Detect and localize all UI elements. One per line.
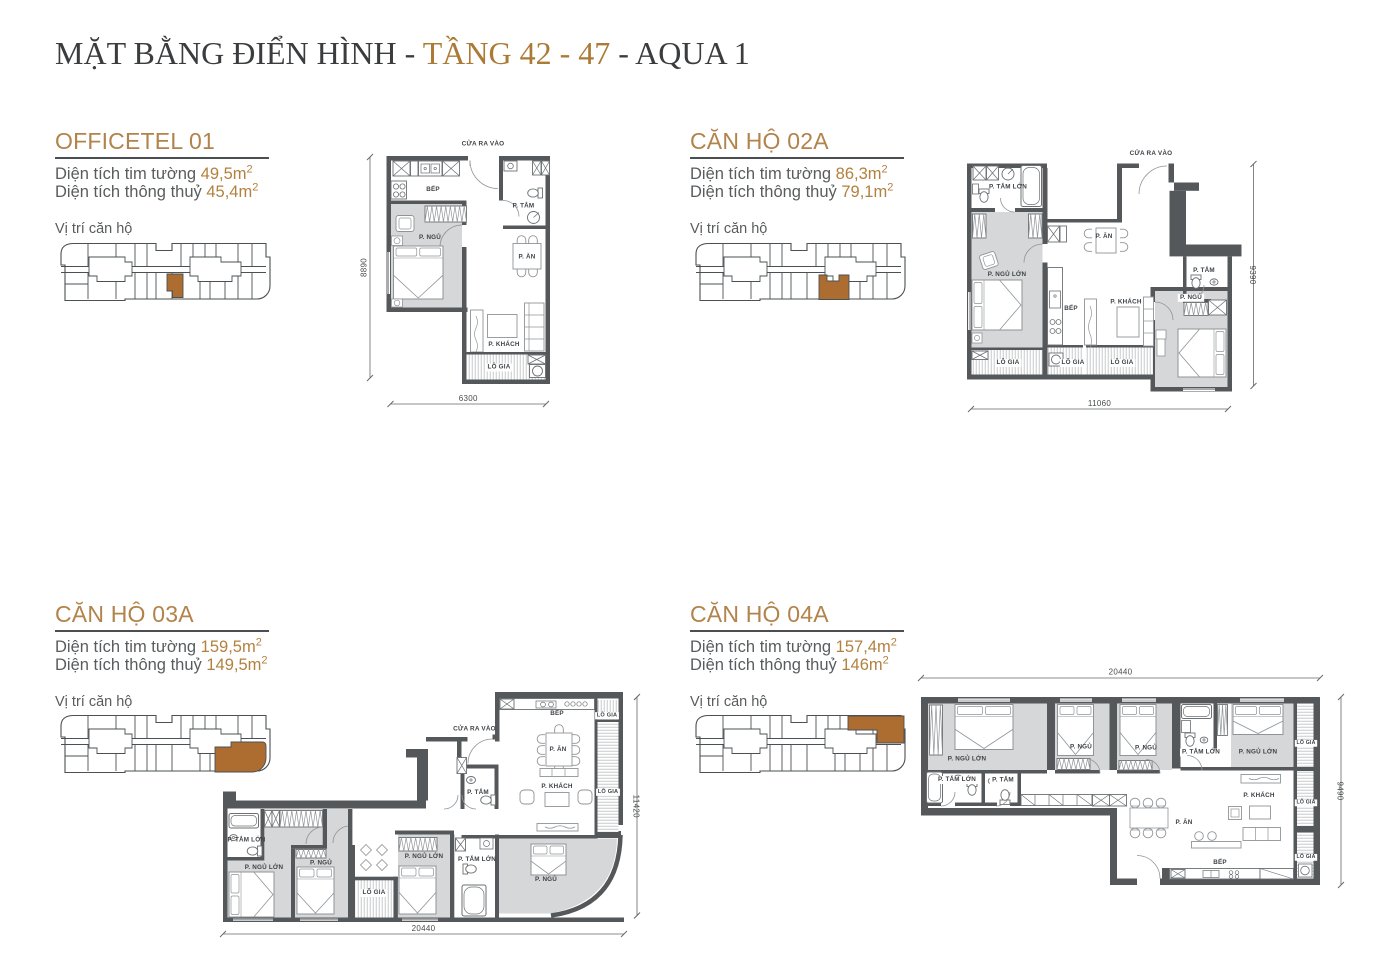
svg-text:20440: 20440 — [412, 924, 436, 933]
svg-text:LÔ GIA: LÔ GIA — [598, 787, 618, 795]
svg-text:LÔ GIA: LÔ GIA — [1296, 798, 1315, 806]
svg-text:P. NGỦ: P. NGỦ — [310, 858, 332, 867]
svg-text:LÔ GIA: LÔ GIA — [1296, 852, 1315, 860]
svg-text:P. NGỦ LỚN: P. NGỦ LỚN — [948, 754, 987, 763]
svg-text:LÔ GIA: LÔ GIA — [1296, 738, 1315, 746]
svg-text:LÔ GIA: LÔ GIA — [997, 357, 1020, 366]
svg-text:P. NGỦ: P. NGỦ — [1070, 742, 1092, 751]
svg-text:P. NGỦ: P. NGỦ — [1180, 292, 1202, 301]
svg-text:11060: 11060 — [1088, 399, 1111, 408]
svg-text:P. TẮM LỚN: P. TẮM LỚN — [989, 182, 1027, 191]
svg-text:P. NGỦ LỚN: P. NGỦ LỚN — [1239, 747, 1278, 756]
svg-text:P. NGỦ: P. NGỦ — [419, 232, 441, 241]
svg-text:P. TẮM: P. TẮM — [992, 775, 1014, 784]
svg-text:P. KHÁCH: P. KHÁCH — [1110, 297, 1141, 306]
svg-text:20440: 20440 — [1109, 668, 1133, 677]
svg-text:LÔ GIA: LÔ GIA — [1111, 357, 1134, 366]
svg-text:LÔ GIA: LÔ GIA — [1062, 357, 1085, 366]
svg-text:P. ĂN: P. ĂN — [1176, 817, 1193, 826]
svg-text:9390: 9390 — [1248, 266, 1257, 285]
svg-text:CỬA RA VÀO: CỬA RA VÀO — [1130, 148, 1173, 157]
svg-text:BẾP: BẾP — [1064, 302, 1078, 312]
svg-text:P. TẮM LỚN: P. TẮM LỚN — [458, 854, 496, 863]
svg-text:P. KHÁCH: P. KHÁCH — [541, 781, 572, 790]
svg-text:LÔ GIA: LÔ GIA — [488, 362, 511, 371]
svg-text:P. TẮM: P. TẮM — [1193, 265, 1215, 274]
svg-text:8890: 8890 — [360, 258, 369, 277]
svg-text:P. NGỦ LỚN: P. NGỦ LỚN — [988, 269, 1027, 278]
svg-text:P. NGỦ LỚN: P. NGỦ LỚN — [245, 862, 284, 871]
svg-text:9490: 9490 — [1336, 782, 1345, 801]
svg-text:P. TẮM LỚN: P. TẮM LỚN — [938, 774, 976, 783]
svg-text:6300: 6300 — [459, 394, 478, 403]
svg-text:P. ĂN: P. ĂN — [519, 252, 536, 261]
svg-text:BẾP: BẾP — [426, 183, 440, 193]
svg-text:P. KHÁCH: P. KHÁCH — [488, 339, 519, 348]
svg-text:BẾP: BẾP — [1213, 856, 1227, 866]
svg-text:P. TẮM LỚN: P. TẮM LỚN — [1182, 747, 1220, 756]
svg-text:P. NGỦ LỚN: P. NGỦ LỚN — [405, 851, 444, 860]
svg-text:11420: 11420 — [632, 795, 641, 818]
svg-text:P. TẮM: P. TẮM — [513, 201, 535, 210]
svg-text:CỬA RA VÀO: CỬA RA VÀO — [453, 724, 496, 733]
svg-text:P. TẮM: P. TẮM — [467, 787, 489, 796]
svg-text:P. NGỦ: P. NGỦ — [1135, 743, 1157, 752]
svg-text:P. ĂN: P. ĂN — [550, 744, 567, 753]
svg-text:P. NGỦ: P. NGỦ — [535, 874, 557, 883]
svg-text:P. KHÁCH: P. KHÁCH — [1243, 790, 1274, 799]
svg-text:CỬA RA VÀO: CỬA RA VÀO — [462, 139, 505, 148]
svg-text:P. TẮM LỚN: P. TẮM LỚN — [227, 835, 265, 844]
svg-text:LÔ GIA: LÔ GIA — [597, 711, 617, 719]
svg-text:P. ĂN: P. ĂN — [1096, 231, 1113, 240]
svg-text:LÔ GIA: LÔ GIA — [363, 887, 386, 896]
